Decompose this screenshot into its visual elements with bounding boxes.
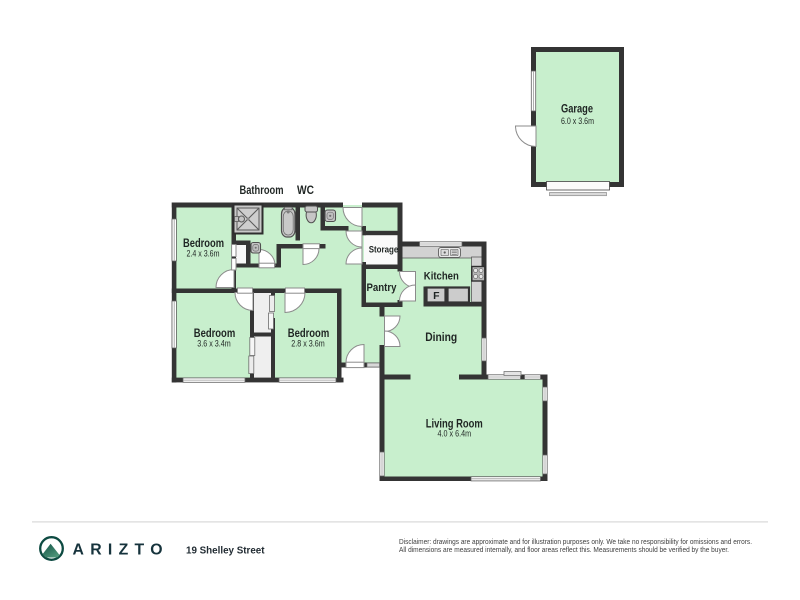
svg-text:2.8 x 3.6m: 2.8 x 3.6m (291, 339, 325, 350)
svg-text:Kitchen: Kitchen (424, 271, 459, 283)
svg-text:3.6 x 3.4m: 3.6 x 3.4m (197, 339, 231, 350)
svg-text:Bathroom: Bathroom (240, 185, 284, 197)
svg-text:Dining: Dining (425, 332, 457, 344)
svg-text:4.0 x 6.4m: 4.0 x 6.4m (438, 429, 472, 440)
svg-text:6.0 x 3.6m: 6.0 x 3.6m (561, 116, 594, 127)
svg-text:Storage: Storage (369, 245, 399, 255)
svg-text:All dimensions are measured in: All dimensions are measured internally, … (399, 547, 729, 554)
svg-text:2.4 x 3.6m: 2.4 x 3.6m (187, 249, 220, 260)
svg-text:Pantry: Pantry (367, 282, 398, 294)
svg-text:Disclaimer: drawings are appro: Disclaimer: drawings are approximate and… (399, 539, 752, 546)
svg-text:Garage: Garage (561, 102, 593, 116)
svg-text:F: F (433, 290, 440, 302)
svg-text:19 Shelley Street: 19 Shelley Street (186, 545, 265, 557)
svg-text:ARIZTO: ARIZTO (73, 542, 169, 559)
svg-text:WC: WC (297, 185, 314, 197)
